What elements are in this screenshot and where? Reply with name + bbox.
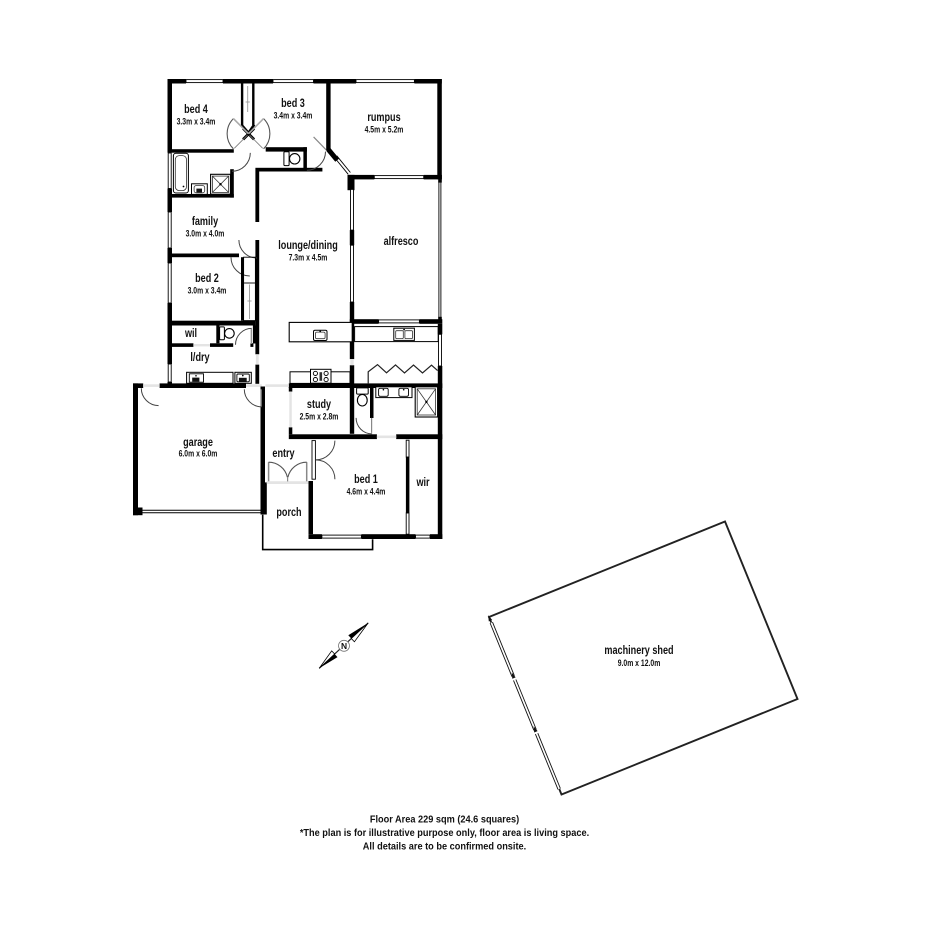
svg-text:3.3m x 3.4m: 3.3m x 3.4m xyxy=(177,117,216,127)
svg-text:machinery shed: machinery shed xyxy=(604,645,673,657)
svg-text:3.0m x 4.0m: 3.0m x 4.0m xyxy=(186,229,225,239)
svg-text:3.0m x 3.4m: 3.0m x 3.4m xyxy=(188,286,227,296)
svg-text:bed 1: bed 1 xyxy=(354,474,378,486)
svg-text:lounge/dining: lounge/dining xyxy=(278,240,338,252)
svg-text:9.0m x 12.0m: 9.0m x 12.0m xyxy=(618,658,661,668)
svg-text:study: study xyxy=(307,399,332,411)
svg-text:bed 4: bed 4 xyxy=(184,104,208,116)
svg-text:2.5m x 2.8m: 2.5m x 2.8m xyxy=(300,412,339,422)
svg-text:6.0m x 6.0m: 6.0m x 6.0m xyxy=(179,449,218,459)
svg-text:7.3m x 4.5m: 7.3m x 4.5m xyxy=(289,253,328,263)
svg-text:bed 3: bed 3 xyxy=(281,98,305,110)
svg-text:4.6m x 4.4m: 4.6m x 4.4m xyxy=(347,487,386,497)
svg-text:family: family xyxy=(192,216,219,228)
svg-text:All details are to be confirme: All details are to be confirmed onsite. xyxy=(363,841,526,853)
svg-text:wil: wil xyxy=(184,328,197,340)
svg-text:*The plan is for illustrative: *The plan is for illustrative purpose on… xyxy=(300,827,589,839)
svg-text:rumpus: rumpus xyxy=(367,112,400,124)
svg-text:wir: wir xyxy=(416,477,430,489)
svg-text:entry: entry xyxy=(272,448,295,460)
svg-text:porch: porch xyxy=(276,507,301,519)
svg-text:Floor Area 229 sqm (24.6 squar: Floor Area 229 sqm (24.6 squares) xyxy=(370,814,519,826)
svg-text:garage: garage xyxy=(183,437,213,449)
svg-text:l/dry: l/dry xyxy=(190,352,210,364)
svg-text:4.5m x 5.2m: 4.5m x 5.2m xyxy=(365,125,404,135)
svg-text:N: N xyxy=(341,641,347,651)
svg-text:alfresco: alfresco xyxy=(384,236,419,248)
svg-text:bed 2: bed 2 xyxy=(195,273,219,285)
svg-text:3.4m x 3.4m: 3.4m x 3.4m xyxy=(274,111,313,121)
